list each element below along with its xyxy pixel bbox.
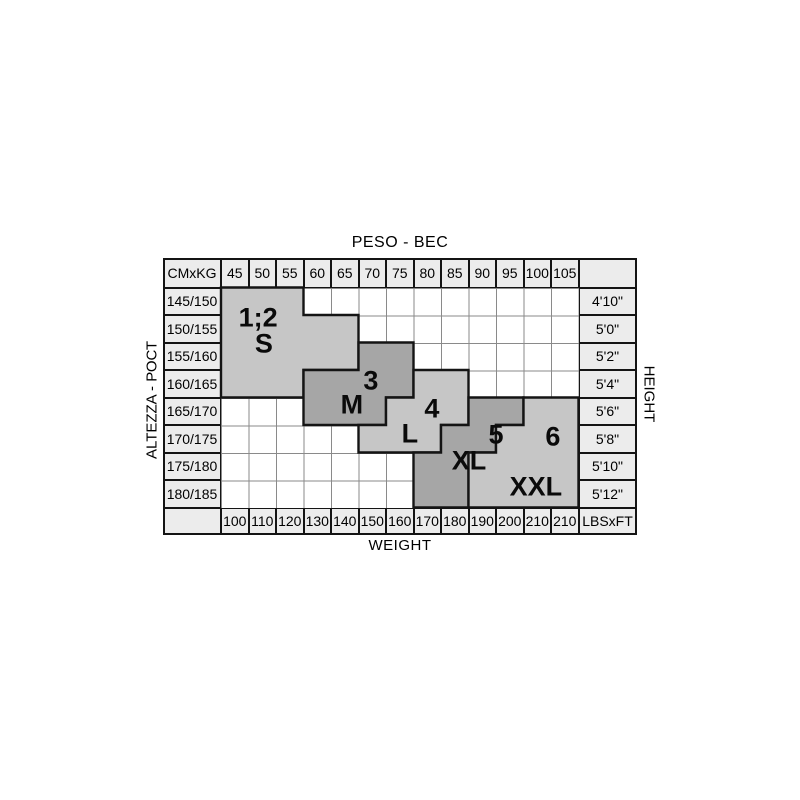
size-number-xxl: 6 bbox=[545, 422, 560, 453]
size-number-xl: 5 bbox=[488, 419, 503, 450]
size-letter-l: L bbox=[402, 419, 419, 450]
height-axis-title-left: ALTEZZA - РОСТ bbox=[144, 341, 161, 459]
size-chart: PESO - ВЕС ALTEZZA - РОСТ HEIGHT WEIGHT … bbox=[0, 0, 800, 800]
size-letter-m: M bbox=[341, 389, 364, 420]
size-regions bbox=[163, 258, 637, 535]
size-number-l: 4 bbox=[424, 394, 439, 425]
weight-axis-title-bottom: WEIGHT bbox=[0, 537, 800, 554]
weight-axis-title-top: PESO - ВЕС bbox=[0, 234, 800, 252]
size-chart-table: CMxKG4550556065707580859095100105145/150… bbox=[163, 258, 637, 535]
size-letter-xxl: XXL bbox=[510, 471, 563, 502]
size-number-m: 3 bbox=[363, 366, 378, 397]
size-letter-xl: XL bbox=[452, 446, 487, 477]
height-axis-title-right: HEIGHT bbox=[641, 366, 658, 423]
size-letter-s: S bbox=[255, 328, 273, 359]
